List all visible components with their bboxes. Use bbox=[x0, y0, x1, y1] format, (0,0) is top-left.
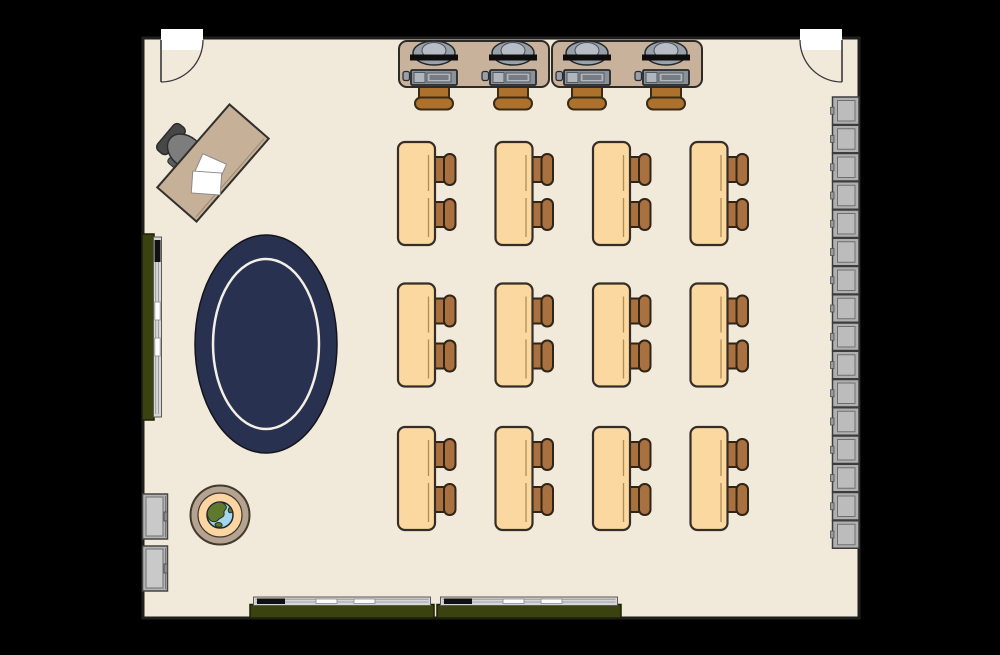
locker[interactable] bbox=[831, 408, 860, 436]
locker-door bbox=[838, 214, 856, 235]
door-opening bbox=[800, 29, 842, 50]
locker-door bbox=[838, 157, 856, 178]
paper-sheet bbox=[191, 171, 221, 195]
desk-top bbox=[691, 427, 728, 530]
chair-backrest bbox=[737, 439, 749, 470]
keyboard-left-block bbox=[567, 73, 578, 83]
chalkboard-bottom[interactable] bbox=[250, 597, 434, 618]
student-chair[interactable] bbox=[531, 341, 554, 372]
computer-chair[interactable] bbox=[415, 85, 453, 110]
locker[interactable] bbox=[831, 380, 860, 408]
student-chair[interactable] bbox=[628, 341, 651, 372]
board-surface bbox=[250, 605, 434, 619]
chair-base bbox=[494, 98, 532, 110]
chair-backrest bbox=[737, 199, 749, 230]
student-chair[interactable] bbox=[433, 199, 456, 230]
chalkboard-bottom[interactable] bbox=[437, 597, 621, 618]
floorplan-canvas bbox=[0, 0, 1000, 655]
locker-door bbox=[838, 383, 856, 404]
student-chair[interactable] bbox=[726, 154, 749, 185]
locker[interactable] bbox=[831, 267, 860, 295]
cabinet-door bbox=[146, 549, 163, 588]
board-surface bbox=[142, 234, 154, 420]
chalk-piece bbox=[155, 338, 160, 356]
reading-table[interactable] bbox=[191, 486, 250, 545]
desk-top bbox=[496, 142, 533, 245]
locker-latch bbox=[831, 446, 835, 453]
desk-top bbox=[593, 284, 630, 387]
chair-backrest bbox=[542, 199, 554, 230]
chair-backrest bbox=[542, 296, 554, 327]
locker-latch bbox=[831, 362, 835, 369]
computer-chair[interactable] bbox=[647, 85, 685, 110]
student-chair[interactable] bbox=[628, 154, 651, 185]
mouse-icon bbox=[482, 72, 489, 81]
chair-backrest bbox=[542, 154, 554, 185]
chair-backrest bbox=[542, 341, 554, 372]
chalk-piece bbox=[354, 599, 375, 604]
chalk-piece bbox=[503, 599, 524, 604]
student-chair[interactable] bbox=[726, 439, 749, 470]
locker-latch bbox=[831, 333, 835, 340]
desk-top bbox=[398, 142, 435, 245]
desk-top bbox=[691, 142, 728, 245]
locker[interactable] bbox=[831, 210, 860, 238]
chair-backrest bbox=[737, 296, 749, 327]
locker-door bbox=[838, 101, 856, 122]
monitor-bar bbox=[410, 55, 458, 61]
locker-latch bbox=[831, 305, 835, 312]
classroom-floorplan bbox=[0, 0, 1000, 655]
cabinet-handle bbox=[164, 564, 168, 573]
landmass bbox=[215, 523, 222, 528]
chalk-tray bbox=[154, 237, 162, 417]
desk-top bbox=[496, 427, 533, 530]
locker[interactable] bbox=[831, 323, 860, 351]
locker-door bbox=[838, 185, 856, 206]
student-chair[interactable] bbox=[531, 484, 554, 515]
chair-backrest bbox=[444, 341, 456, 372]
keyboard-keys bbox=[430, 75, 449, 80]
monitor-bar bbox=[642, 55, 690, 61]
monitor-bar bbox=[489, 55, 537, 61]
chair-backrest bbox=[639, 341, 651, 372]
locker-latch bbox=[831, 107, 835, 114]
chair-base bbox=[647, 98, 685, 110]
chalk-piece bbox=[316, 599, 337, 604]
locker-latch bbox=[831, 164, 835, 171]
student-chair[interactable] bbox=[726, 484, 749, 515]
paper[interactable] bbox=[191, 171, 221, 195]
locker[interactable] bbox=[831, 351, 860, 379]
desk-top bbox=[496, 284, 533, 387]
locker-door bbox=[838, 468, 856, 489]
locker[interactable] bbox=[831, 97, 860, 125]
cabinet-door bbox=[146, 497, 163, 536]
student-chair[interactable] bbox=[726, 341, 749, 372]
door-opening bbox=[161, 29, 203, 50]
monitor-bar bbox=[563, 55, 611, 61]
chair-backrest bbox=[444, 484, 456, 515]
locker-door bbox=[838, 298, 856, 319]
locker-latch bbox=[831, 220, 835, 227]
locker-latch bbox=[831, 192, 835, 199]
chair-backrest bbox=[737, 341, 749, 372]
locker[interactable] bbox=[831, 493, 860, 521]
desk-top bbox=[398, 427, 435, 530]
mouse-icon bbox=[403, 72, 410, 81]
locker-latch bbox=[831, 136, 835, 143]
keyboard-keys bbox=[509, 75, 528, 80]
student-chair[interactable] bbox=[726, 296, 749, 327]
student-chair[interactable] bbox=[628, 439, 651, 470]
eraser bbox=[257, 599, 285, 605]
student-chair[interactable] bbox=[628, 296, 651, 327]
locker[interactable] bbox=[831, 238, 860, 266]
cabinet[interactable] bbox=[143, 494, 168, 539]
locker-door bbox=[838, 242, 856, 263]
locker-door bbox=[838, 327, 856, 348]
rug[interactable] bbox=[195, 235, 337, 453]
locker-door bbox=[838, 355, 856, 376]
locker-latch bbox=[831, 418, 835, 425]
desk-top bbox=[593, 427, 630, 530]
locker[interactable] bbox=[831, 154, 860, 182]
locker[interactable] bbox=[831, 182, 860, 210]
chair-backrest bbox=[542, 484, 554, 515]
chair-backrest bbox=[737, 484, 749, 515]
chair-backrest bbox=[639, 154, 651, 185]
chair-backrest bbox=[639, 439, 651, 470]
chair-base bbox=[415, 98, 453, 110]
student-chair[interactable] bbox=[433, 484, 456, 515]
rug-outer bbox=[195, 235, 337, 453]
student-chair[interactable] bbox=[433, 439, 456, 470]
chair-backrest bbox=[639, 296, 651, 327]
locker-latch bbox=[831, 503, 835, 510]
board-surface bbox=[437, 605, 621, 619]
chair-backrest bbox=[737, 154, 749, 185]
locker-latch bbox=[831, 531, 835, 538]
chair-backrest bbox=[542, 439, 554, 470]
chair-backrest bbox=[639, 484, 651, 515]
locker[interactable] bbox=[831, 464, 860, 492]
student-chair[interactable] bbox=[531, 439, 554, 470]
student-chair[interactable] bbox=[531, 154, 554, 185]
keyboard-left-block bbox=[414, 73, 425, 83]
chalkboard-left[interactable] bbox=[142, 234, 162, 420]
chair-backrest bbox=[444, 199, 456, 230]
desk-top bbox=[398, 284, 435, 387]
student-chair[interactable] bbox=[433, 154, 456, 185]
chair-backrest bbox=[444, 439, 456, 470]
locker-latch bbox=[831, 249, 835, 256]
chalk-piece bbox=[541, 599, 562, 604]
locker[interactable] bbox=[831, 436, 860, 464]
keyboard-keys bbox=[583, 75, 602, 80]
locker-latch bbox=[831, 475, 835, 482]
eraser bbox=[444, 599, 472, 605]
locker-door bbox=[838, 411, 856, 432]
computer-chair[interactable] bbox=[494, 85, 532, 110]
desk-top bbox=[593, 142, 630, 245]
locker-door bbox=[838, 496, 856, 517]
chair-base bbox=[568, 98, 606, 110]
locker-latch bbox=[831, 277, 835, 284]
locker-door bbox=[838, 270, 856, 291]
student-chair[interactable] bbox=[433, 341, 456, 372]
student-chair[interactable] bbox=[628, 199, 651, 230]
computer-chair[interactable] bbox=[568, 85, 606, 110]
keyboard-keys bbox=[662, 75, 681, 80]
student-chair[interactable] bbox=[433, 296, 456, 327]
chair-backrest bbox=[639, 199, 651, 230]
chalk-piece bbox=[155, 302, 160, 320]
cabinet-handle bbox=[164, 512, 168, 521]
mouse-icon bbox=[635, 72, 642, 81]
student-chair[interactable] bbox=[628, 484, 651, 515]
locker[interactable] bbox=[831, 125, 860, 153]
chair-backrest bbox=[444, 154, 456, 185]
cabinet[interactable] bbox=[143, 546, 168, 591]
student-chair[interactable] bbox=[531, 296, 554, 327]
mouse-icon bbox=[556, 72, 563, 81]
eraser bbox=[155, 240, 161, 262]
desk-top bbox=[691, 284, 728, 387]
locker-door bbox=[838, 524, 856, 545]
student-chair[interactable] bbox=[726, 199, 749, 230]
student-chair[interactable] bbox=[531, 199, 554, 230]
keyboard-left-block bbox=[493, 73, 504, 83]
locker[interactable] bbox=[831, 521, 860, 549]
chair-backrest bbox=[444, 296, 456, 327]
locker[interactable] bbox=[831, 295, 860, 323]
locker-door bbox=[838, 129, 856, 150]
locker-door bbox=[838, 440, 856, 461]
keyboard-left-block bbox=[646, 73, 657, 83]
locker-latch bbox=[831, 390, 835, 397]
